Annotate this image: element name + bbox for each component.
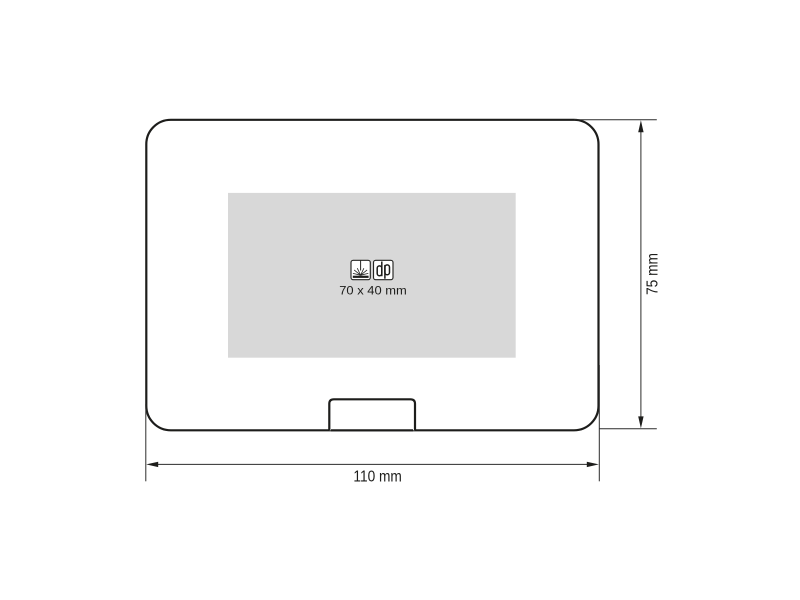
svg-text:75 mm: 75 mm <box>644 253 661 295</box>
svg-text:110 mm: 110 mm <box>353 469 402 486</box>
svg-text:70 x 40 mm: 70 x 40 mm <box>339 284 407 298</box>
